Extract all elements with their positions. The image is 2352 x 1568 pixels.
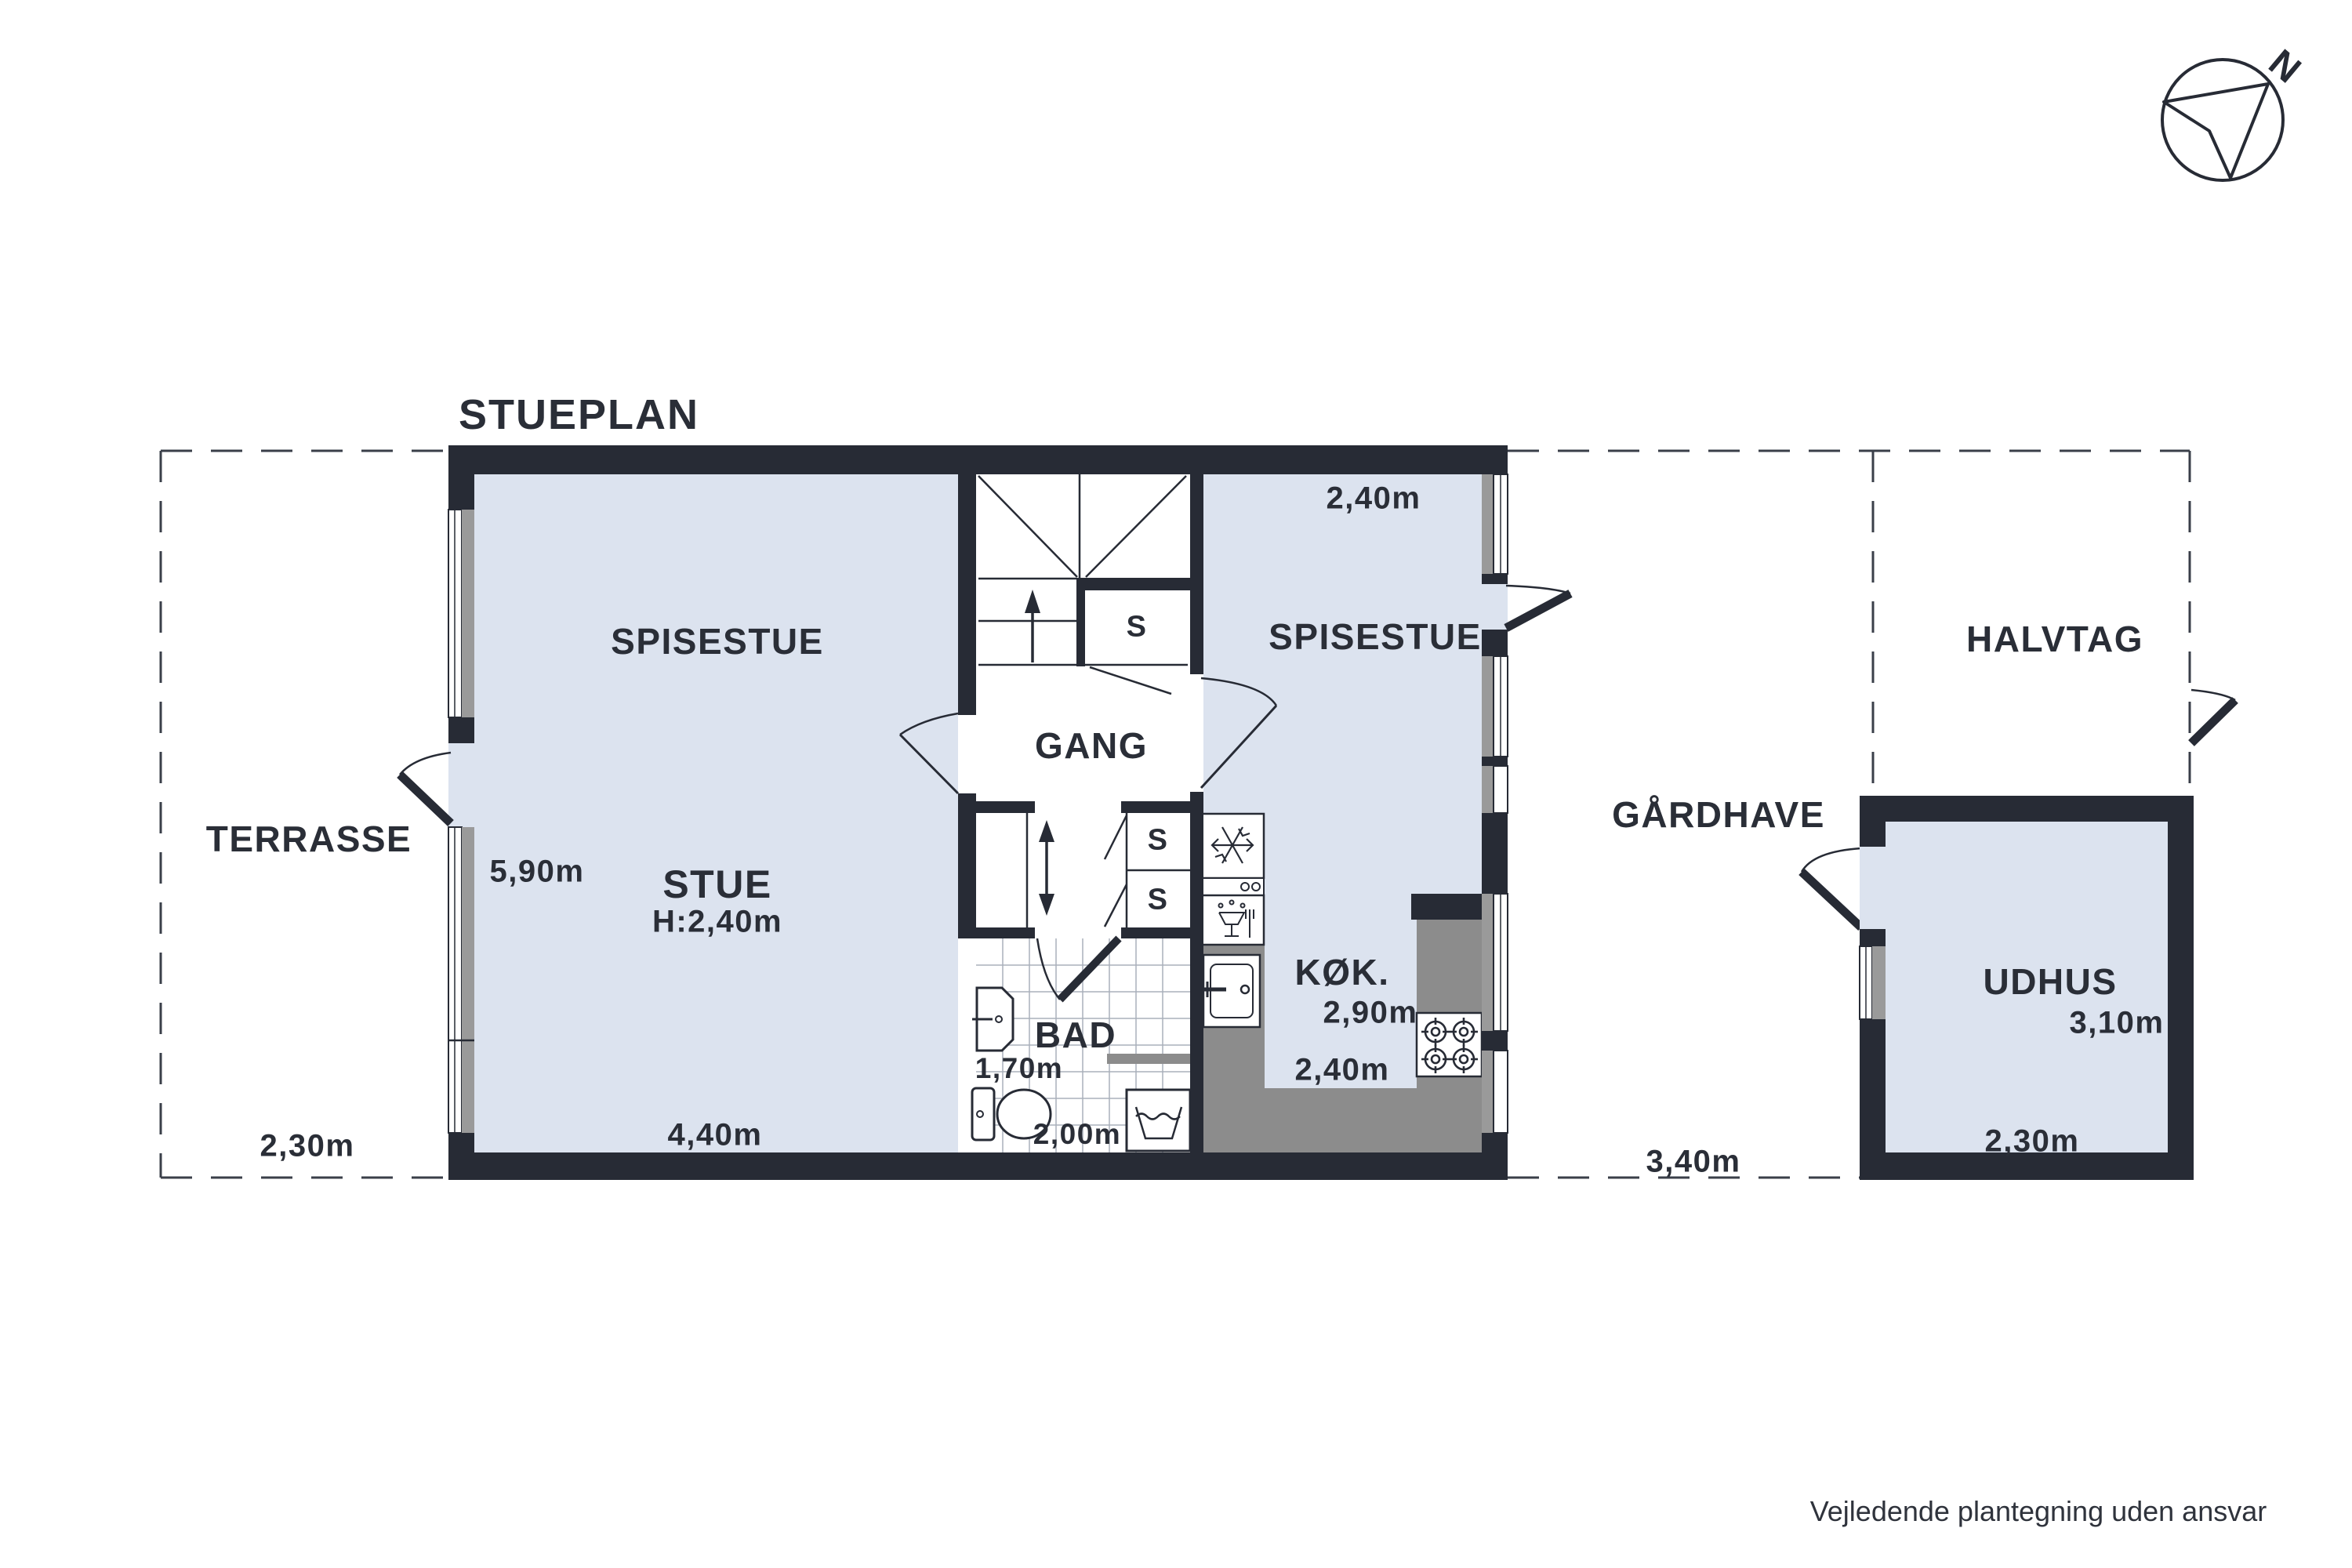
window-spisestue-right-2 [1482, 656, 1508, 757]
stue-ceiling-height: H:2,40m [652, 905, 782, 940]
room-label-gang: GANG [1035, 724, 1148, 767]
room-label-spisestue-left: SPISESTUE [611, 620, 824, 662]
room-label-stue: STUE [662, 862, 771, 907]
closet-label-upper: S [1148, 824, 1169, 858]
dim-bad-width: 1,70m [975, 1052, 1063, 1085]
freezer-snowflake-icon [1202, 814, 1264, 878]
bath-sink-icon [972, 988, 1013, 1051]
dim-udhus-depth: 3,10m [2070, 1006, 2165, 1041]
kitchen-sink-icon [1202, 955, 1260, 1027]
dim-kok-depth: 2,90m [1323, 996, 1418, 1031]
udhus-door [1802, 848, 1861, 927]
shower-partition [1107, 1054, 1190, 1064]
window-kok-upper [1482, 894, 1508, 1031]
room-label-kok: KØK. [1295, 951, 1390, 993]
udhus-door-opening [1860, 847, 1886, 929]
floor-plan-page: N STUEPLAN SPISESTUE STUE H:2,40m 5,90m … [0, 0, 2352, 1568]
room-label-bad: BAD [1035, 1014, 1116, 1056]
dishwasher-icon [1202, 895, 1264, 945]
dim-bad-length: 2,00m [1033, 1118, 1121, 1151]
window-stue-upper [448, 510, 474, 717]
window-spisestue-right [1482, 474, 1508, 574]
window-kok-lower [1482, 1051, 1508, 1133]
dim-terrasse-width: 2,30m [260, 1129, 355, 1164]
dim-kok-width: 2,40m [1295, 1053, 1390, 1088]
floor-plan-drawing: N [0, 0, 2352, 1568]
terrasse-door-opening [448, 743, 474, 827]
washing-machine-icon [1127, 1090, 1190, 1151]
gaardhave-door-opening [1482, 584, 1508, 630]
area-label-halvtag: HALVTAG [1966, 618, 2143, 660]
terrasse-door [400, 753, 451, 823]
dim-spisestue-right-width: 2,40m [1327, 481, 1421, 517]
room-label-spisestue-right: SPISESTUE [1269, 615, 1482, 658]
floor-stue-spisestue [474, 474, 958, 1152]
room-label-udhus: UDHUS [1983, 960, 2117, 1003]
window-stue-lower [448, 827, 474, 1133]
dim-gaardhave-width: 3,40m [1646, 1145, 1741, 1180]
disclaimer-text: Vejledende plantegning uden ansvar [1810, 1495, 2267, 1528]
gaardhave-door [1506, 586, 1570, 628]
closet-label-lower: S [1148, 884, 1169, 917]
plan-title: STUEPLAN [459, 390, 699, 439]
oven-icon [1202, 878, 1264, 895]
north-compass-icon: N [2162, 42, 2308, 180]
halvtag-gate [2191, 690, 2235, 743]
window-spisestue-right-3 [1482, 766, 1508, 813]
dim-stue-depth: 5,90m [490, 855, 585, 890]
dim-stue-width: 4,40m [668, 1118, 763, 1153]
stove-burners-icon [1417, 1013, 1482, 1076]
closet-label-stairs: S [1127, 611, 1148, 644]
dim-udhus-width: 2,30m [1985, 1124, 2080, 1160]
udhus-window [1860, 946, 1886, 1019]
area-label-gaardhave: GÅRDHAVE [1612, 793, 1825, 836]
area-label-terrasse: TERRASSE [206, 818, 412, 860]
